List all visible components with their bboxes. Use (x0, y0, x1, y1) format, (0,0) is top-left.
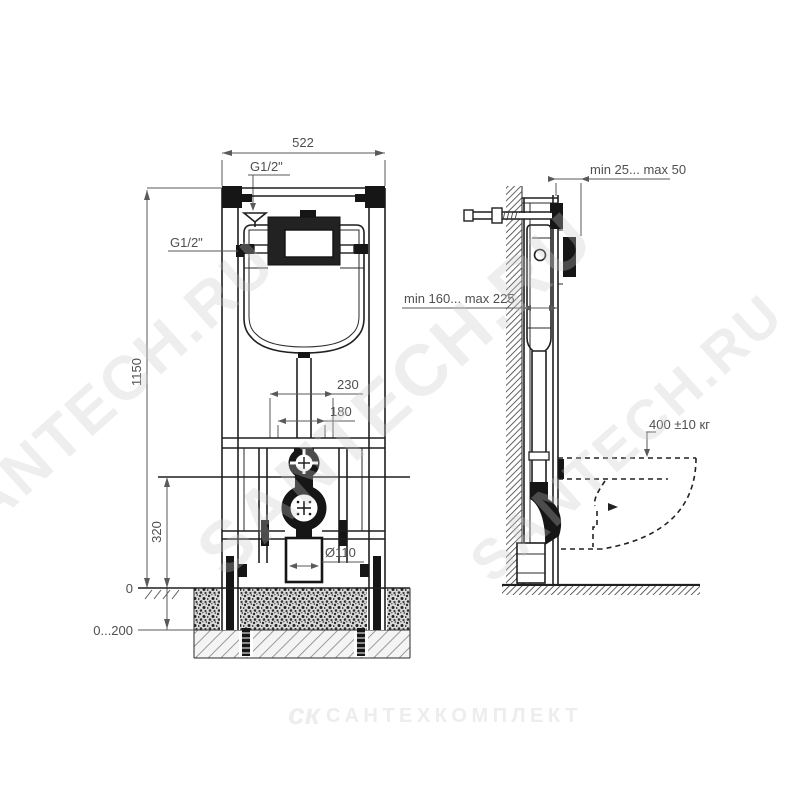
floor-slab (194, 630, 410, 658)
dim-320-label: 320 (149, 521, 164, 543)
corner-bracket-right (365, 186, 385, 208)
zero-label: 0 (126, 581, 133, 596)
side-floor-line (502, 585, 700, 595)
wall-clearance-label: min 25... max 50 (590, 162, 686, 177)
flush-plate-window (285, 230, 333, 257)
dim-width-label: 522 (292, 135, 314, 150)
inlet-top-label: G1/2" (250, 159, 283, 174)
corner-bracket-left (222, 186, 242, 208)
inlet-side-label: G1/2" (170, 235, 203, 250)
anchor-rod-left (242, 628, 250, 656)
watermark-company: САНТЕХКОМПЛЕКТ (326, 705, 582, 727)
anchor-rod-right (357, 628, 365, 656)
dim-drain-dia-label: Ø110 (325, 545, 356, 560)
side-arm-right (354, 244, 368, 254)
watermark-logo: ск (288, 698, 322, 731)
technical-drawing-page: 522 G1/2" (0, 0, 800, 800)
installation-frame-drawing: 522 G1/2" (0, 0, 800, 800)
leg-lock-right (360, 564, 369, 577)
floor-range-label: 0...200 (93, 623, 133, 638)
bowl-bolt-right (339, 520, 347, 546)
